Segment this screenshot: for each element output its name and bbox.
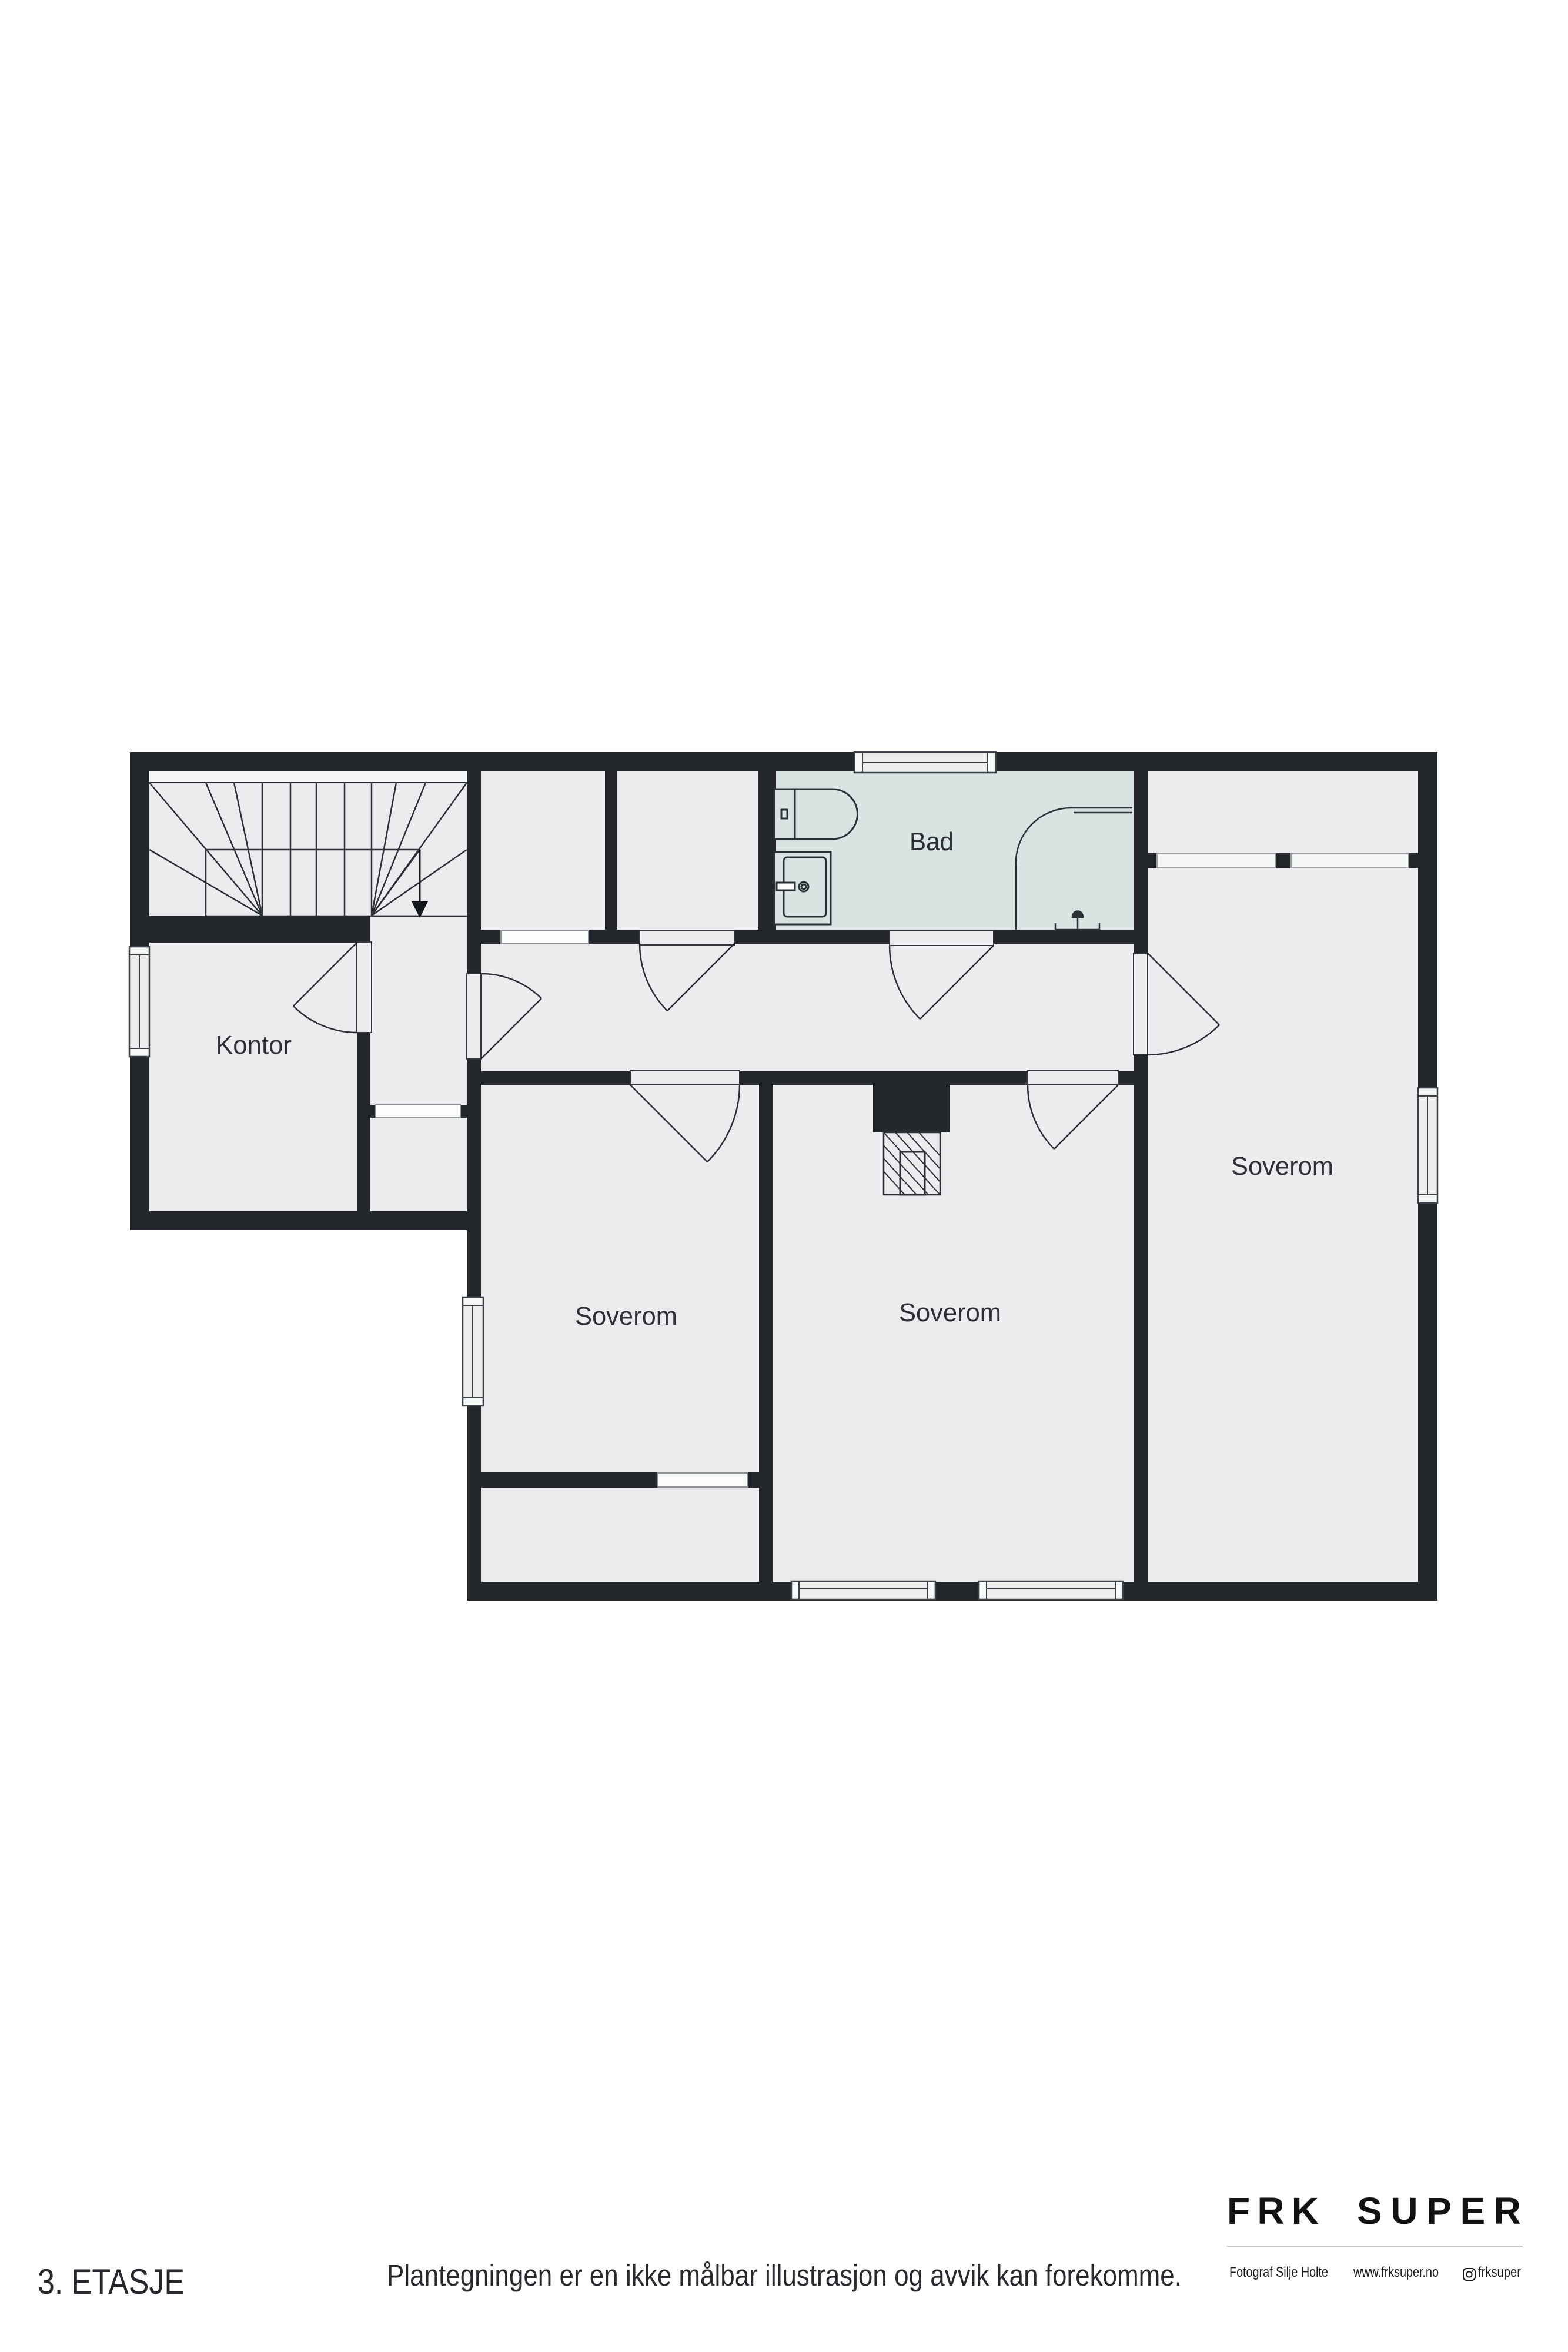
svg-text:Soverom: Soverom: [899, 1298, 1001, 1327]
svg-text:Bad: Bad: [910, 827, 954, 856]
svg-text:Kontor: Kontor: [216, 1031, 292, 1060]
svg-text:Soverom: Soverom: [1231, 1152, 1333, 1181]
svg-text:3. ETASJE: 3. ETASJE: [38, 2262, 185, 2301]
svg-text:SUPER: SUPER: [1357, 2190, 1521, 2232]
svg-text:Fotograf Silje Holte: Fotograf Silje Holte: [1229, 2264, 1328, 2280]
svg-text:www.frksuper.no: www.frksuper.no: [1353, 2264, 1439, 2280]
svg-text:frksuper: frksuper: [1478, 2264, 1521, 2280]
svg-text:Plantegningen er en ikke målba: Plantegningen er en ikke målbar illustra…: [387, 2259, 1182, 2292]
svg-text:FRK: FRK: [1227, 2190, 1319, 2232]
svg-text:Soverom: Soverom: [575, 1302, 677, 1331]
